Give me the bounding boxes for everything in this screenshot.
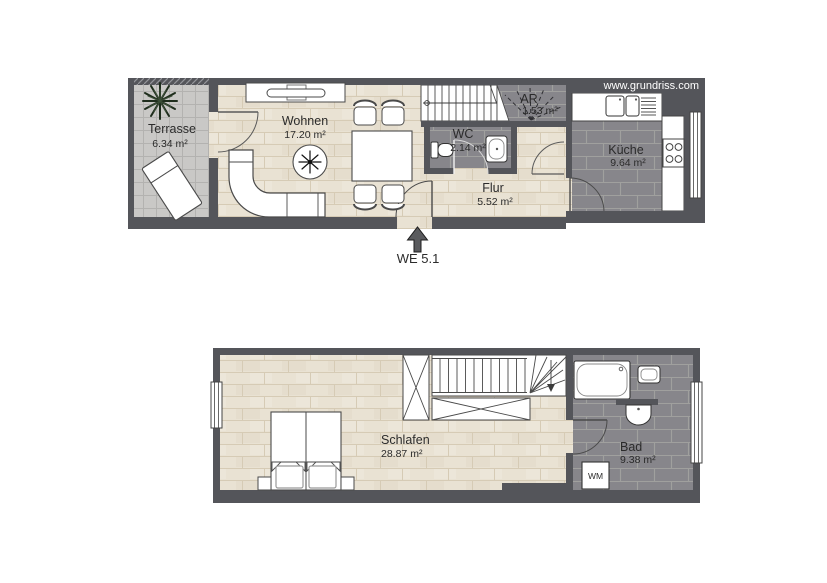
dining-set (352, 101, 412, 210)
room-area-flur: 5.52 m² (477, 196, 513, 208)
room-area-schlafen: 28.87 m² (381, 448, 423, 460)
bath-toilet (638, 366, 660, 383)
chair (354, 107, 376, 125)
wc-door-opening (454, 168, 488, 174)
entrance-arrow-icon (408, 227, 428, 252)
double-bed (271, 412, 341, 490)
washing-machine: WM (582, 462, 609, 489)
wall-jut (502, 483, 573, 497)
room-label-schlafen: Schlafen (381, 433, 430, 447)
watermark-text: www.grundriss.com (603, 80, 699, 92)
nightstand (341, 477, 354, 490)
room-label-kueche: Küche (608, 143, 643, 157)
chair (382, 185, 404, 203)
room-area-wohnen: 17.20 m² (284, 129, 326, 141)
kitchen-sink-basin-2 (626, 96, 639, 116)
bath-door-opening (566, 420, 573, 453)
room-area-terrasse: 6.34 m² (152, 138, 188, 150)
room-label-bad: Bad (620, 440, 642, 454)
room-label-flur: Flur (482, 181, 504, 195)
bath-partition (616, 399, 658, 405)
entrance-opening (397, 217, 432, 229)
kitchen-bottom-wall (566, 211, 705, 223)
bedroom-window (211, 382, 222, 428)
room-area-kueche: 9.64 m² (610, 157, 646, 169)
room-label-ar: AR (520, 92, 537, 106)
kitchen-door-opening (566, 178, 572, 212)
wc-sink (486, 136, 507, 162)
room-label-wohnen: Wohnen (282, 114, 328, 128)
entrance-unit-label: WE 5.1 (397, 251, 440, 266)
room-area-wc: 2.14 m² (450, 142, 486, 154)
chair (354, 185, 376, 203)
nightstand (258, 477, 271, 490)
kitchen-corner-block (662, 93, 692, 116)
stove (663, 139, 684, 167)
room-area-ar: 1.53 m² (522, 105, 558, 117)
bathtub (574, 361, 630, 399)
bath-window (691, 382, 702, 463)
floorplan-svg: WE 5.1 (0, 0, 827, 583)
kitchen-window (690, 112, 701, 198)
kitchen-counter-top (572, 93, 662, 121)
upper-bottom-wall (128, 217, 572, 229)
dining-table (352, 131, 412, 181)
room-label-wc: WC (453, 127, 474, 141)
upper-floor-plan: WE 5.1 (128, 78, 705, 266)
coffee-table (293, 145, 327, 179)
washing-machine-label: WM (588, 471, 603, 481)
room-area-bad: 9.38 m² (620, 454, 656, 466)
sideboard (246, 83, 345, 102)
pillow (309, 466, 336, 488)
chair (382, 107, 404, 125)
kitchen-sink-basin-1 (606, 96, 624, 116)
room-label-terrasse: Terrasse (148, 122, 196, 136)
bath-sink (626, 405, 651, 425)
terrace-door-opening (209, 112, 218, 158)
floorplan-page: WE 5.1 (0, 0, 827, 583)
pillow (276, 466, 303, 488)
lower-floor-plan: WM Schlafen 28.87 m² Bad 9.38 m² (211, 348, 702, 503)
upper-stairs (421, 85, 509, 121)
